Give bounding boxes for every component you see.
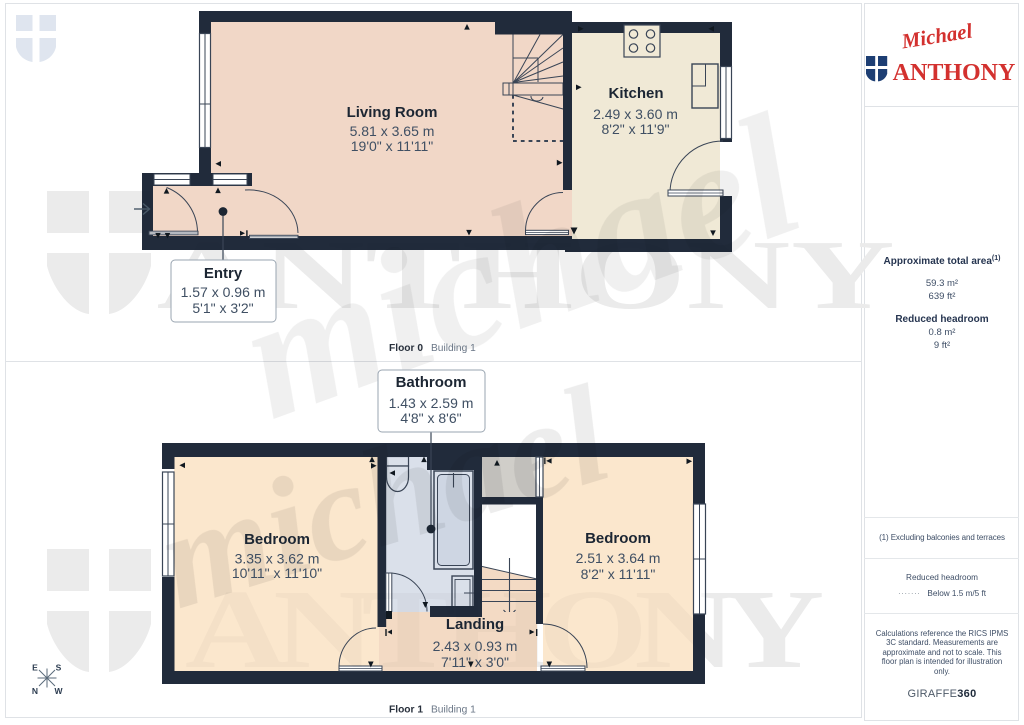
svg-text:Entry: Entry	[204, 265, 243, 282]
svg-text:2.51 x 3.64 m: 2.51 x 3.64 m	[576, 550, 661, 566]
svg-text:8'2" x 11'9": 8'2" x 11'9"	[602, 121, 670, 137]
svg-text:Floor 0: Floor 0	[389, 343, 423, 354]
svg-text:8'2" x 11'11": 8'2" x 11'11"	[581, 566, 656, 582]
svg-text:W: W	[54, 686, 63, 696]
svg-text:Bedroom: Bedroom	[585, 530, 651, 547]
svg-text:Floor 1: Floor 1	[389, 705, 423, 716]
svg-text:Kitchen: Kitchen	[608, 85, 663, 102]
svg-text:10'11" x 11'10": 10'11" x 11'10"	[232, 565, 322, 581]
svg-text:Building 1: Building 1	[431, 705, 476, 716]
svg-text:Bedroom: Bedroom	[244, 531, 310, 548]
svg-text:1.43 x 2.59 m: 1.43 x 2.59 m	[389, 395, 474, 411]
svg-text:4'8" x 8'6": 4'8" x 8'6"	[400, 410, 461, 426]
svg-text:5'1" x 3'2": 5'1" x 3'2"	[192, 300, 253, 316]
svg-text:Living Room: Living Room	[347, 104, 438, 121]
svg-text:1.57 x 0.96 m: 1.57 x 0.96 m	[181, 284, 266, 300]
svg-text:E: E	[32, 663, 38, 673]
svg-text:Building 1: Building 1	[431, 343, 476, 354]
svg-text:7'11" x 3'0": 7'11" x 3'0"	[441, 654, 509, 670]
svg-text:S: S	[56, 663, 62, 673]
svg-text:19'0" x 11'11": 19'0" x 11'11"	[351, 138, 434, 154]
svg-text:2.43 x 0.93 m: 2.43 x 0.93 m	[433, 638, 518, 654]
svg-text:Landing: Landing	[446, 616, 504, 633]
svg-text:Bathroom: Bathroom	[396, 374, 467, 391]
svg-text:5.81 x 3.65 m: 5.81 x 3.65 m	[350, 123, 435, 139]
svg-text:N: N	[32, 686, 38, 696]
svg-text:2.49 x 3.60 m: 2.49 x 3.60 m	[593, 106, 678, 122]
